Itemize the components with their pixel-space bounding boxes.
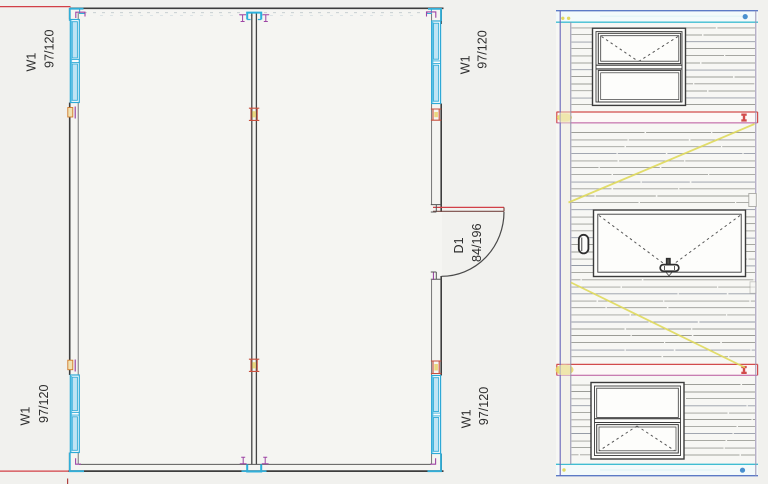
svg-text:W1: W1 (19, 407, 33, 426)
svg-text:97/120: 97/120 (475, 30, 489, 69)
svg-text:D1: D1 (452, 237, 466, 253)
svg-text:W1: W1 (458, 55, 472, 74)
svg-text:W1: W1 (25, 53, 39, 72)
svg-text:97/120: 97/120 (37, 384, 51, 423)
svg-text:97/120: 97/120 (43, 29, 57, 68)
svg-text:97/120: 97/120 (477, 387, 491, 426)
svg-text:W1: W1 (460, 409, 474, 428)
svg-text:84/196: 84/196 (470, 223, 484, 262)
